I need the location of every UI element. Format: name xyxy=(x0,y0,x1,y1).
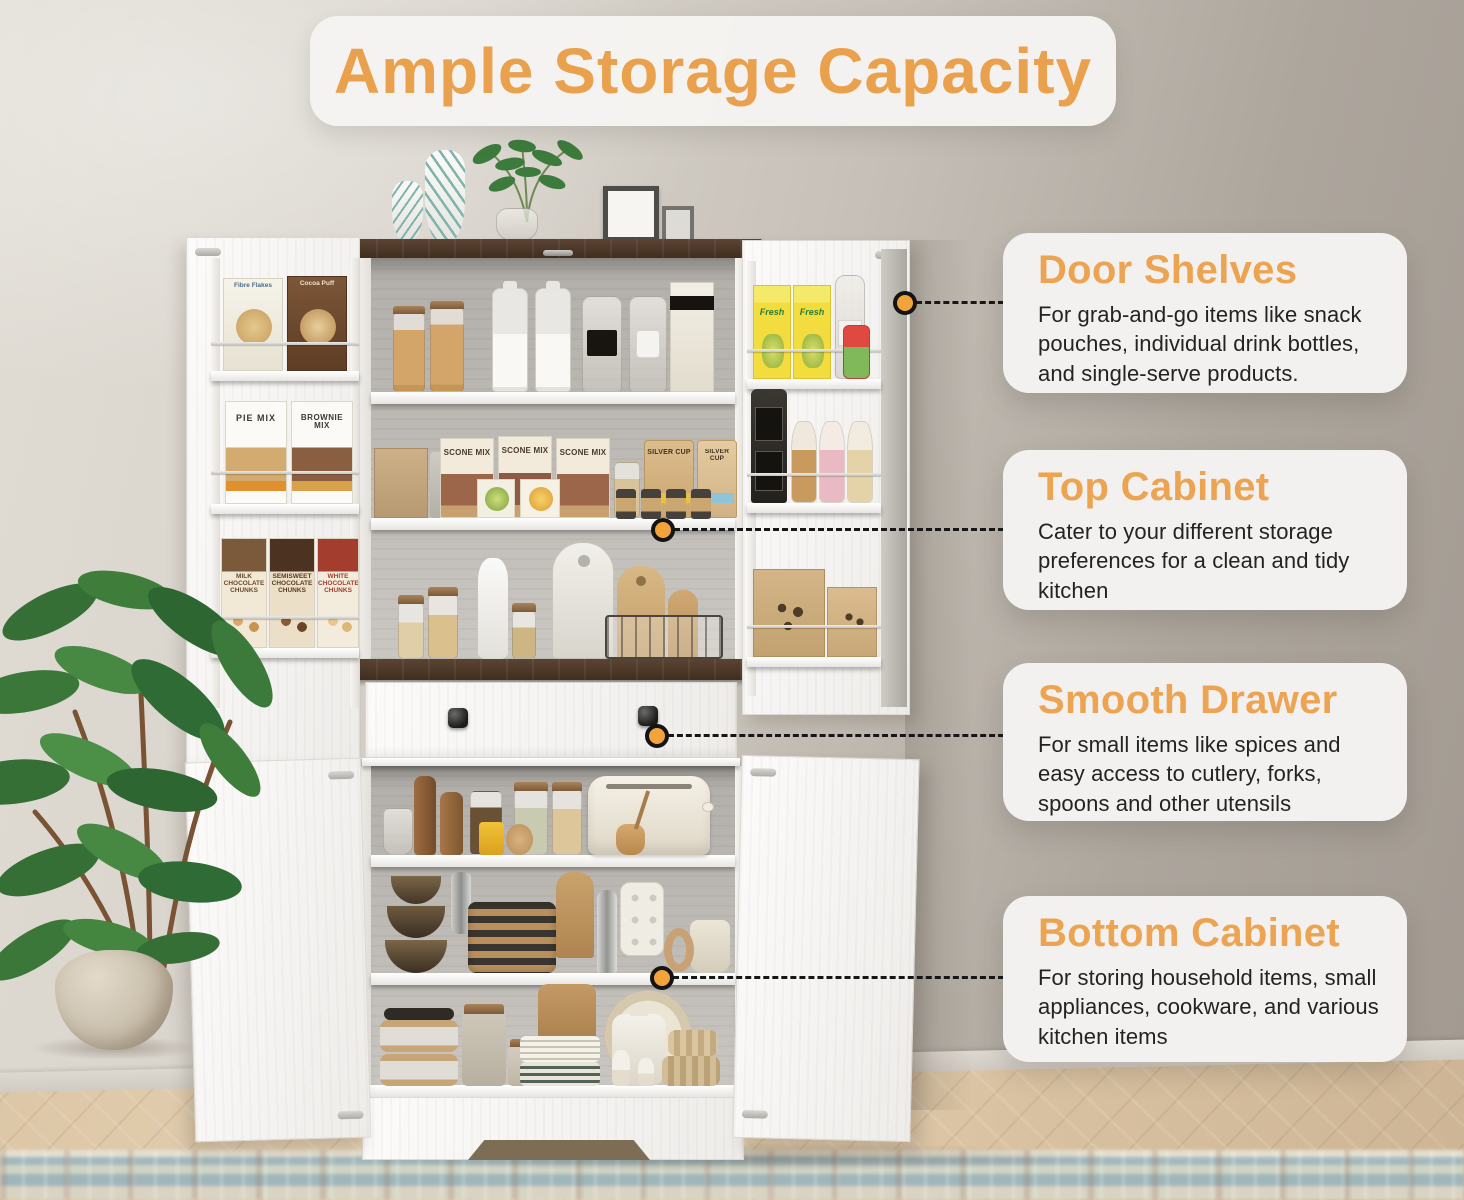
white-plate-stack xyxy=(520,1036,600,1062)
green-badge xyxy=(485,487,509,511)
white-vase-bottle xyxy=(478,558,508,659)
toaster-lever xyxy=(702,802,714,812)
door-wire xyxy=(747,625,881,628)
spice-jar xyxy=(641,489,661,519)
drawer-knob-left xyxy=(448,708,468,728)
top-cabinet-shelf-1 xyxy=(371,392,735,404)
chrome-shaker xyxy=(597,890,617,973)
door-shelf-bar xyxy=(211,371,359,381)
door-edge xyxy=(881,249,907,707)
green-plate-stack xyxy=(520,1062,600,1086)
round-label xyxy=(636,330,660,358)
green-badge-pack xyxy=(477,479,515,518)
callout-body: Cater to your different storage preferen… xyxy=(1038,517,1383,605)
glass-storage-stack xyxy=(380,1008,458,1086)
base-arch-cutout xyxy=(468,1140,650,1160)
yellow-jar xyxy=(479,822,504,855)
spice-jar xyxy=(691,489,711,519)
whiskey-label xyxy=(755,407,783,441)
glass-vase xyxy=(496,208,538,242)
bronze-bowl-stack xyxy=(385,876,447,973)
door-shelf-bar xyxy=(747,657,881,667)
snack-jar-lid xyxy=(430,301,464,309)
cereal-label: Cocoa Puff xyxy=(288,280,346,287)
top-right-door: Fresh Fresh xyxy=(742,240,910,715)
yellow-badge xyxy=(529,487,553,511)
kraft-box xyxy=(753,569,825,657)
milk-bottle xyxy=(847,421,873,503)
board-hole xyxy=(636,576,646,586)
title-text: Ample Storage Capacity xyxy=(334,34,1092,108)
storage-box xyxy=(380,1054,458,1086)
connector-dot xyxy=(651,518,675,542)
top-board-latch xyxy=(543,250,573,256)
grain-jar xyxy=(552,789,582,855)
callout-heading: Bottom Cabinet xyxy=(1038,911,1383,956)
toaster xyxy=(588,776,710,855)
callout-top-cabinet: Top Cabinet Cater to your different stor… xyxy=(1003,450,1407,610)
spice-jar xyxy=(666,489,686,519)
brownie-mix-label: BROWNIE MIX xyxy=(292,414,352,431)
product-infographic: SCONE MIX SCONE MIX SCONE MIX SILVER CUP… xyxy=(0,0,1464,1200)
bottle-cap xyxy=(503,281,517,291)
potted-plant-leaves xyxy=(0,552,340,982)
snack-jar xyxy=(393,312,425,392)
salt-shaker xyxy=(612,1050,630,1086)
silver-cup-label: SILVER CUP xyxy=(645,449,693,456)
scone-mix-label: SCONE MIX xyxy=(499,447,551,455)
bottle-white-label xyxy=(535,288,571,392)
kraft-print xyxy=(770,596,810,636)
door-hinge xyxy=(742,1110,768,1119)
woven-basket xyxy=(662,1056,720,1086)
cork-jar xyxy=(512,610,536,659)
wood-wreath xyxy=(664,928,694,972)
cork-lid xyxy=(428,587,458,596)
connector-line xyxy=(674,528,1004,531)
juice-label: Fresh xyxy=(754,308,790,318)
cork-lid xyxy=(514,782,548,791)
door-hinge xyxy=(338,1111,364,1120)
bottom-right-door xyxy=(732,755,919,1142)
honey-pot xyxy=(616,824,645,855)
cereal-box: Fibre Flakes xyxy=(223,278,283,371)
drawer-knob-right xyxy=(638,706,658,726)
vertical-cutting-board xyxy=(556,872,594,958)
door-shelf-bar xyxy=(747,379,881,389)
white-egg-tray xyxy=(620,882,664,956)
cork-lid xyxy=(512,603,536,612)
connector-dot xyxy=(650,966,674,990)
small-vase xyxy=(392,181,423,241)
scone-mix-label: SCONE MIX xyxy=(441,449,493,457)
connector-line xyxy=(673,976,1004,979)
door-wire xyxy=(211,342,359,345)
callout-heading: Smooth Drawer xyxy=(1038,678,1383,723)
bowl xyxy=(387,906,445,938)
callout-body: For storing household items, small appli… xyxy=(1038,963,1383,1051)
storage-lid xyxy=(384,1008,454,1020)
cereal-box: Cocoa Puff xyxy=(287,276,347,371)
wood-disc xyxy=(506,824,533,855)
soda-can xyxy=(843,325,870,379)
pepper-grinder xyxy=(440,792,463,855)
spice-jar xyxy=(616,489,636,519)
kraft-coffee-box xyxy=(374,448,428,518)
callout-bottom-cabinet: Bottom Cabinet For storing household ite… xyxy=(1003,896,1407,1062)
brownie-mix-box: BROWNIE MIX xyxy=(291,401,353,504)
connector-dot xyxy=(893,291,917,315)
board-hole xyxy=(578,555,590,567)
door-hinge xyxy=(195,248,221,256)
door-wire xyxy=(211,471,359,474)
black-label xyxy=(587,330,617,356)
callout-body: For small items like spices and easy acc… xyxy=(1038,730,1383,818)
bowl xyxy=(385,940,447,973)
cereal-art xyxy=(300,309,336,345)
counter-board xyxy=(350,659,762,680)
milk-bottle xyxy=(819,421,845,503)
woven-basket xyxy=(668,1030,718,1056)
cream-pitcher xyxy=(690,920,730,973)
juice-carton: Fresh xyxy=(753,285,791,379)
pie-mix-box: PIE MIX xyxy=(225,401,287,504)
gift-box-band xyxy=(670,296,714,310)
connector-dot xyxy=(645,724,669,748)
drawer-front xyxy=(365,682,737,758)
connector-line xyxy=(916,301,1004,304)
teapot-lid xyxy=(630,1004,648,1016)
door-hinge xyxy=(750,768,776,777)
salt-shaker xyxy=(638,1058,654,1086)
bottle-white-label xyxy=(492,288,528,392)
door-wire xyxy=(747,473,881,476)
picture-frame-large xyxy=(603,186,659,242)
snack-jar xyxy=(430,307,464,392)
callout-heading: Door Shelves xyxy=(1038,248,1383,293)
storage-box xyxy=(380,1020,458,1052)
juice-carton: Fresh xyxy=(793,285,831,379)
toaster-slot xyxy=(606,784,692,789)
silver-cup-label: SILVER CUP xyxy=(698,449,736,463)
juice-label: Fresh xyxy=(794,308,830,318)
cereal-label: Fibre Flakes xyxy=(224,282,282,289)
scone-mix-label: SCONE MIX xyxy=(557,449,609,457)
pie-mix-label: PIE MIX xyxy=(226,414,286,423)
bowl xyxy=(391,876,441,904)
kraft-box xyxy=(827,587,877,657)
bottom-cabinet-shelf-1 xyxy=(371,855,735,867)
plate-stack-wood-black xyxy=(468,902,556,973)
callout-smooth-drawer: Smooth Drawer For small items like spice… xyxy=(1003,663,1407,821)
wire-basket xyxy=(605,615,723,659)
door-shelf-bar xyxy=(211,504,359,514)
wall-shadow xyxy=(905,240,995,1110)
bottle-cap xyxy=(546,281,560,291)
cereal-art xyxy=(236,309,272,345)
callout-heading: Top Cabinet xyxy=(1038,465,1383,510)
bottom-cabinet-floor xyxy=(362,1085,744,1097)
whiskey-label xyxy=(755,451,783,491)
whiskey-bottle xyxy=(751,389,787,503)
greige-canister xyxy=(462,1012,506,1086)
tray-dimples xyxy=(626,889,660,951)
callout-door-shelves: Door Shelves For grab-and-go items like … xyxy=(1003,233,1407,393)
pepper-grinder xyxy=(414,776,436,855)
yellow-badge-pack xyxy=(520,479,560,518)
snack-jar-lid xyxy=(393,306,425,314)
kraft-print xyxy=(840,608,868,636)
scone-mix-box: SCONE MIX xyxy=(556,438,610,518)
cork-jar xyxy=(398,602,424,659)
door-shelf-bar xyxy=(747,503,881,513)
drawer-bottom-rail xyxy=(362,758,740,766)
callout-body: For grab-and-go items like snack pouches… xyxy=(1038,300,1383,388)
cork-jar xyxy=(428,594,458,659)
milk-bottle xyxy=(791,421,817,503)
page-title: Ample Storage Capacity xyxy=(310,16,1116,126)
cork-lid xyxy=(398,595,424,604)
connector-line xyxy=(668,734,1004,737)
glass-pitcher xyxy=(383,808,413,855)
canister-lid xyxy=(464,1004,504,1014)
cork-lid xyxy=(552,782,582,791)
